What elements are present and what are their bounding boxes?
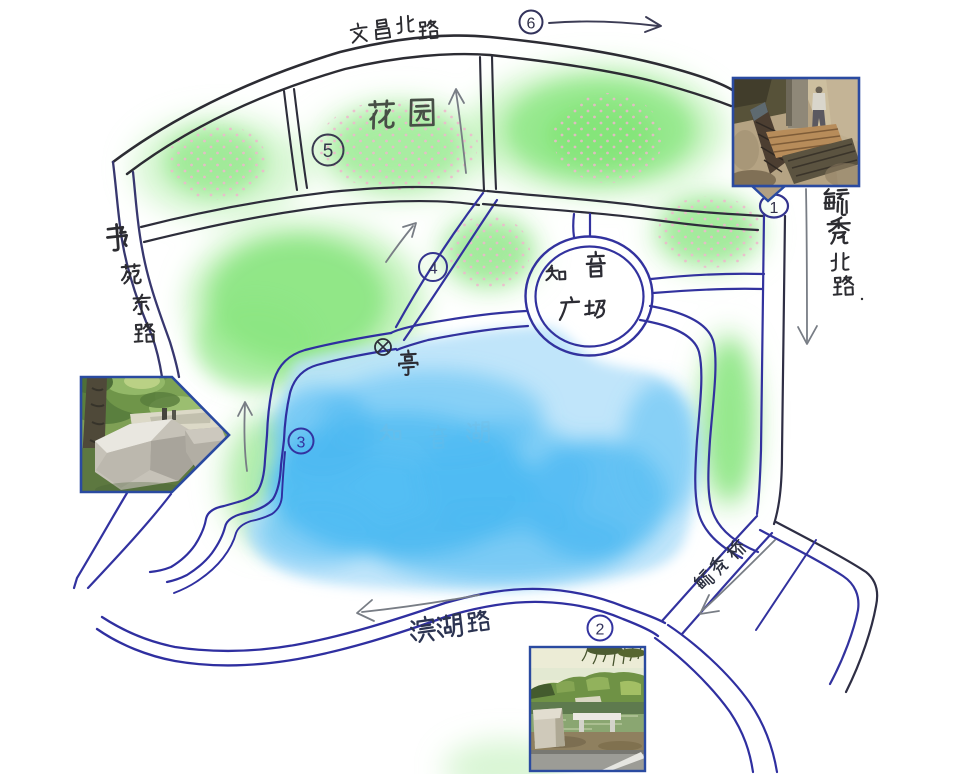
svg-text:3: 3 [297, 435, 306, 452]
svg-text:4: 4 [428, 259, 437, 278]
svg-text:1: 1 [770, 200, 779, 217]
svg-text:6: 6 [527, 16, 536, 33]
svg-text:2: 2 [596, 622, 605, 639]
svg-text:5: 5 [323, 141, 334, 162]
